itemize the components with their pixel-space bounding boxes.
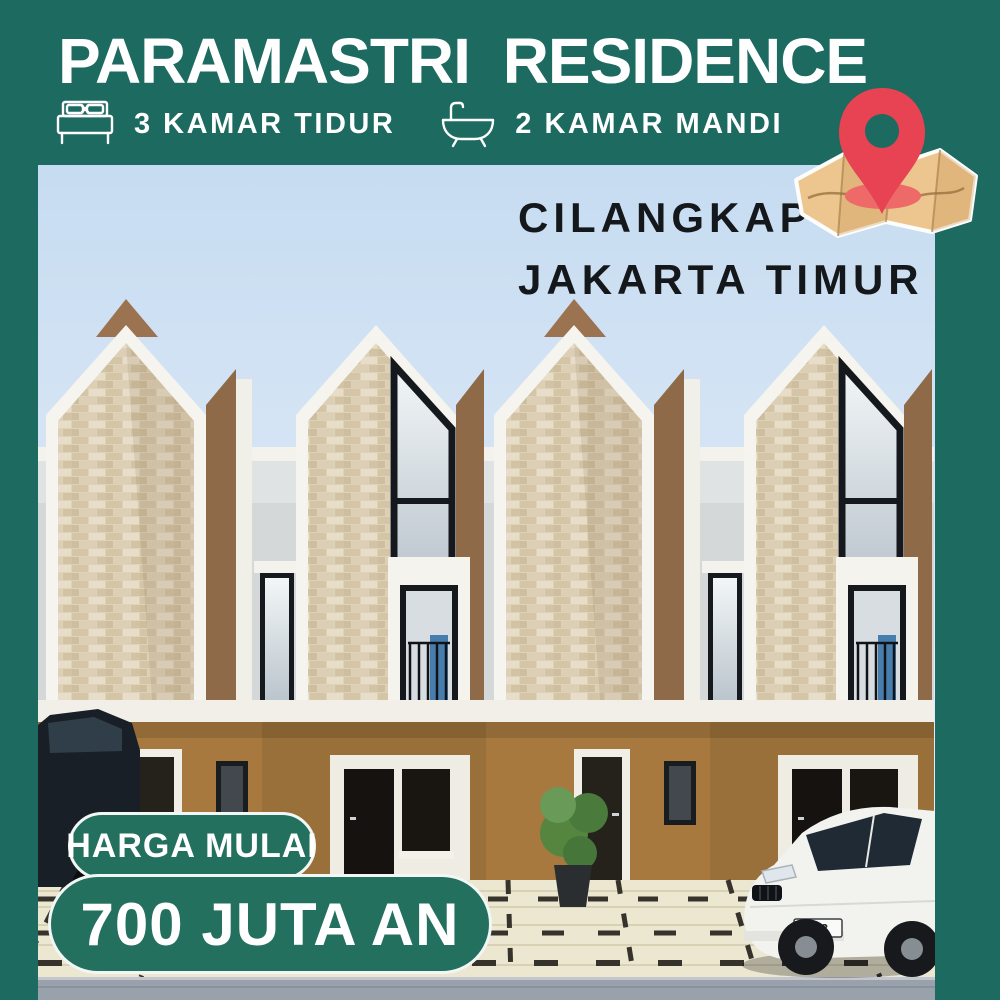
bathtub-icon	[437, 98, 499, 150]
price-label-badge: HARGA MULAI	[68, 812, 316, 880]
bathrooms-label: 2 KAMAR MANDI	[515, 108, 783, 141]
bedrooms-label: 3 KAMAR TIDUR	[134, 108, 395, 141]
bed-icon	[52, 98, 118, 150]
price-label: HARGA MULAI	[66, 827, 318, 866]
location-map	[780, 80, 992, 260]
page-title: PARAMASTRI RESIDENCE	[58, 24, 867, 98]
price-value-badge: 700 JUTA AN	[48, 874, 492, 974]
poster: PARAMASTRI RESIDENCE 3 KAMAR TIDUR 2 KAM…	[0, 0, 1000, 1000]
price-value: 700 JUTA AN	[81, 890, 460, 959]
feature-row: 3 KAMAR TIDUR 2 KAMAR MANDI	[52, 96, 783, 152]
